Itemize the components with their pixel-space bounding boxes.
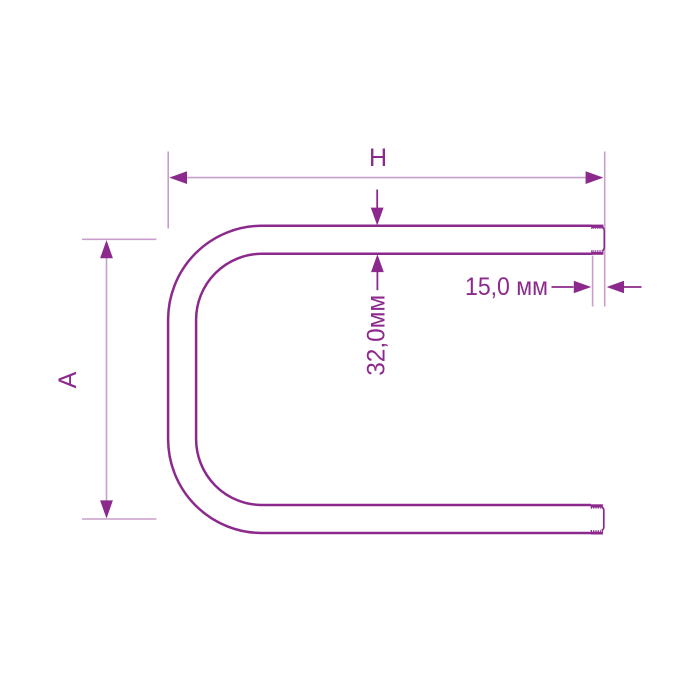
svg-text:A: A (54, 371, 82, 388)
svg-text:15,0 мм: 15,0 мм (465, 273, 548, 301)
svg-text:H: H (369, 144, 387, 172)
svg-text:32,0мм: 32,0мм (363, 295, 391, 376)
